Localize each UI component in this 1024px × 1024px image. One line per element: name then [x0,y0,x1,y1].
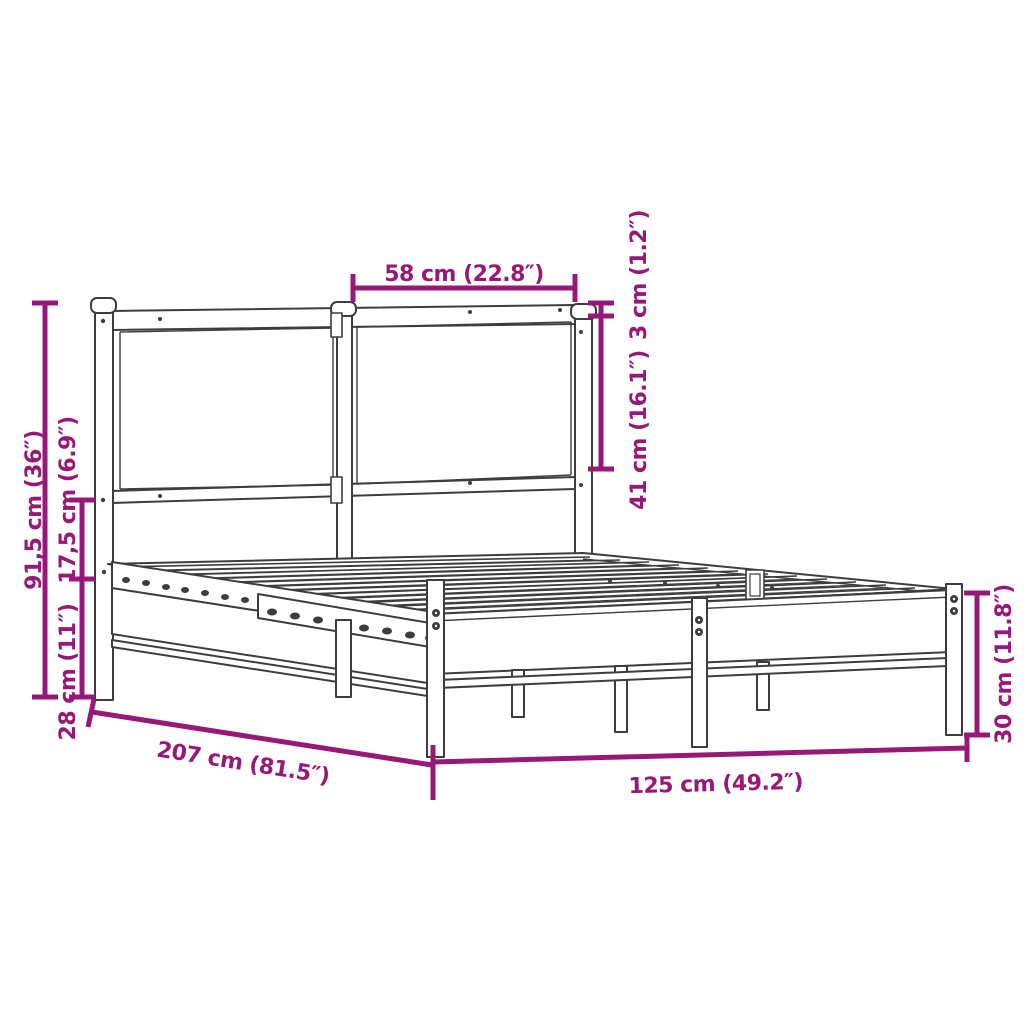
dim-label-foot-end-height: 30 cm (11.8″) [992,584,1017,744]
dim-label-headboard-total-height: 91,5 cm (36″) [22,430,47,590]
far-corner-leg [946,584,962,735]
headboard-left-post [95,310,113,700]
dim-line-foot-end-height [964,593,990,735]
bed-frame-dimension-diagram: 58 cm (22.8″) 3 cm (1.2″) 41 cm (16.1″) … [0,0,1024,1024]
center-post-top-bracket [331,313,342,337]
headboard-center-post [337,314,352,560]
headboard-left-cap [91,298,116,313]
dim-label-bed-width: 125 cm (49.2″) [628,770,803,800]
dim-label-under-bed-clearance: 28 cm (11″) [56,604,81,741]
center-post-bottom-bracket [331,477,342,503]
dim-label-headboard-panel-width: 58 cm (22.8″) [384,262,544,287]
bed-frame-drawing [91,298,962,757]
dim-line-bed-length [88,699,433,800]
dim-label-top-rail-thickness: 3 cm (1.2″) [627,210,652,340]
diagram-canvas: 58 cm (22.8″) 3 cm (1.2″) 41 cm (16.1″) … [0,0,1024,1024]
dim-label-rail-to-platform-gap: 17,5 cm (6.9″) [56,416,81,583]
dim-label-headboard-panel-height: 41 cm (16.1″) [627,350,652,510]
center-post-leg [336,620,351,697]
front-corner-leg [427,580,444,757]
center-rail-bracket-inner [750,574,760,596]
